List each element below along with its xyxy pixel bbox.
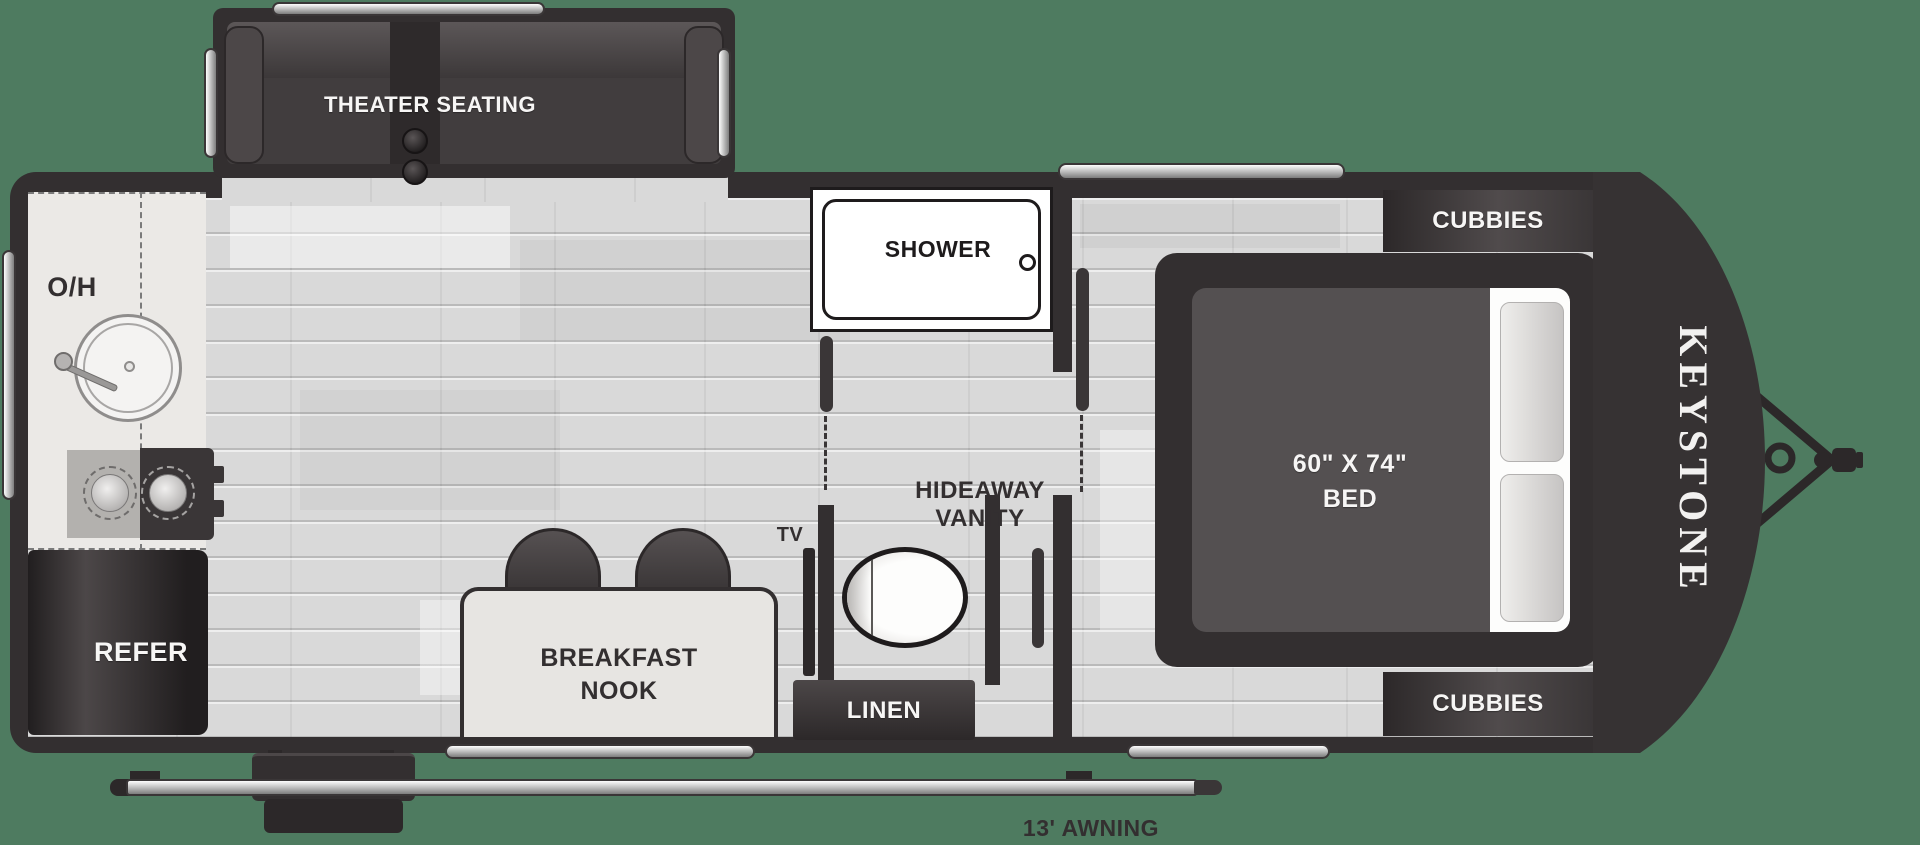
stove-knob [212, 500, 224, 517]
awning-end-cap-right [1194, 780, 1222, 795]
bath-wall-right-upper [1053, 187, 1072, 372]
entry-steps-lower [264, 799, 403, 833]
hitch-a-frame [1753, 393, 1863, 527]
sink-drain-dot [124, 361, 135, 372]
pillow [1500, 302, 1564, 462]
cupholder [402, 159, 428, 185]
floorplan-canvas: O/H REFER BREAKFAST NOOK TV SHOWER HIDEA… [0, 0, 1920, 845]
hideaway-vanity-line2: VANITY [880, 505, 1080, 533]
stove-burner [83, 466, 137, 520]
hideaway-vanity-line1: HIDEAWAY [880, 477, 1080, 505]
awning-roller-bar [126, 779, 1198, 796]
slideout-left-window [204, 48, 218, 158]
keystone-logo: KEYSTONE [1671, 325, 1716, 595]
breakfast-nook-label: BREAKFAST NOOK [460, 642, 778, 708]
stove-knob [212, 466, 224, 483]
toilet-tank-shade [847, 552, 871, 644]
dinette-window [445, 744, 755, 759]
linen-label: LINEN [793, 697, 975, 725]
bed-side-window [1127, 744, 1330, 759]
stove-burner [141, 466, 195, 520]
tv-panel [803, 548, 815, 676]
awning-label: 13' AWNING [1013, 815, 1169, 842]
shower-label: SHOWER [838, 236, 1038, 263]
overhead-cabinet-label: O/H [28, 272, 116, 303]
toilet [842, 547, 968, 648]
cupholder [402, 128, 428, 154]
bed-size-label: 60" X 74" [1240, 447, 1460, 482]
sofa-seat [227, 76, 721, 164]
slideout-opening-floor [222, 176, 728, 202]
bedroom-door [1076, 268, 1089, 411]
bathroom-door-swing-dash [824, 416, 827, 490]
shower-drain [1019, 254, 1036, 271]
hideaway-vanity-label: HIDEAWAY VANITY [880, 477, 1080, 533]
bedroom-window [1058, 163, 1345, 180]
sofa-backrest [227, 22, 721, 78]
bed-word-label: BED [1240, 482, 1460, 517]
slideout-right-window [717, 48, 731, 158]
tv-label: TV [766, 524, 814, 547]
refrigerator-label: REFER [58, 637, 224, 668]
faucet-knob [54, 352, 73, 371]
front-cap-and-hitch: KEYSTONE [1560, 120, 1920, 830]
bedroom-door-swing-dash [1080, 415, 1083, 492]
toilet-room-door-open [1032, 548, 1044, 648]
theater-seating-label: THEATER SEATING [240, 92, 620, 118]
bed-label: 60" X 74" BED [1240, 447, 1460, 517]
rear-wall-window [2, 250, 16, 500]
breakfast-nook-label-line1: BREAKFAST [460, 642, 778, 675]
slideout-rear-window [272, 2, 545, 16]
bathroom-door [820, 336, 833, 412]
toilet-seat-line [871, 556, 873, 640]
pillow [1500, 474, 1564, 622]
breakfast-nook-label-line2: NOOK [460, 675, 778, 708]
